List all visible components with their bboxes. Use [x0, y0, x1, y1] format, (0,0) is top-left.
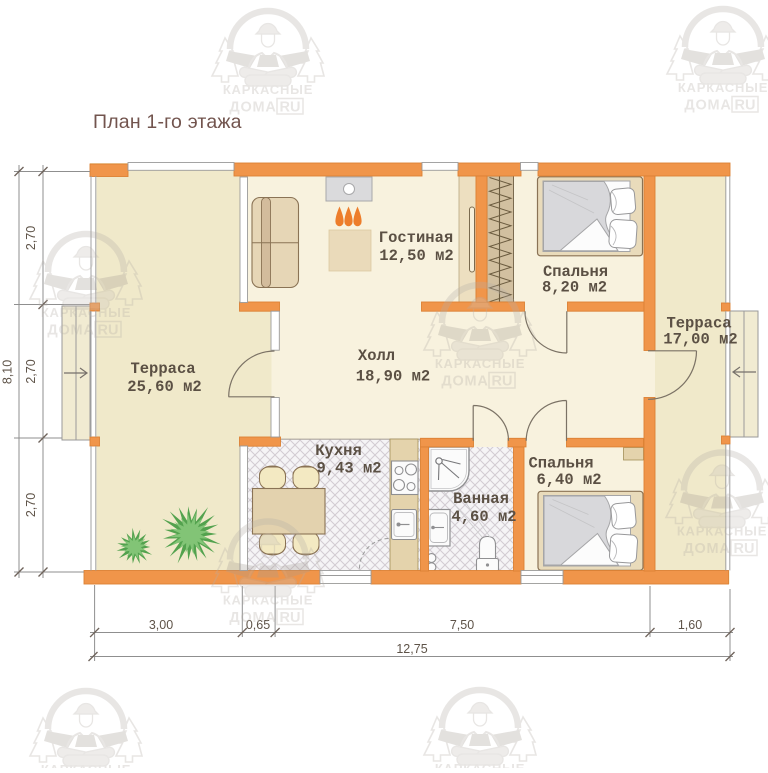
- svg-text:Ванная: Ванная: [453, 490, 509, 508]
- svg-text:1,60: 1,60: [678, 618, 702, 632]
- svg-text:Гостиная: Гостиная: [379, 229, 453, 247]
- svg-text:Кухня: Кухня: [315, 442, 362, 460]
- svg-text:Спальня: Спальня: [528, 455, 593, 473]
- svg-text:9,43 м2: 9,43 м2: [316, 460, 381, 478]
- svg-text:План 1-го этажа: План 1-го этажа: [93, 111, 242, 133]
- svg-text:7,50: 7,50: [450, 618, 474, 632]
- svg-text:25,60 м2: 25,60 м2: [127, 378, 201, 396]
- svg-text:18,90 м2: 18,90 м2: [356, 368, 430, 386]
- svg-text:4,60 м2: 4,60 м2: [451, 508, 516, 526]
- svg-text:2,70: 2,70: [24, 359, 38, 383]
- svg-text:12,50 м2: 12,50 м2: [379, 247, 453, 265]
- svg-text:2,70: 2,70: [24, 226, 38, 250]
- svg-text:6,40 м2: 6,40 м2: [536, 471, 601, 489]
- svg-text:12,75: 12,75: [396, 642, 427, 656]
- svg-text:17,00 м2: 17,00 м2: [663, 331, 737, 349]
- svg-text:Холл: Холл: [358, 347, 395, 365]
- svg-text:Терраса: Терраса: [130, 360, 195, 378]
- svg-text:8,20 м2: 8,20 м2: [542, 279, 607, 297]
- svg-text:2,70: 2,70: [24, 493, 38, 517]
- svg-text:8,10: 8,10: [1, 360, 15, 384]
- svg-text:3,00: 3,00: [149, 618, 173, 632]
